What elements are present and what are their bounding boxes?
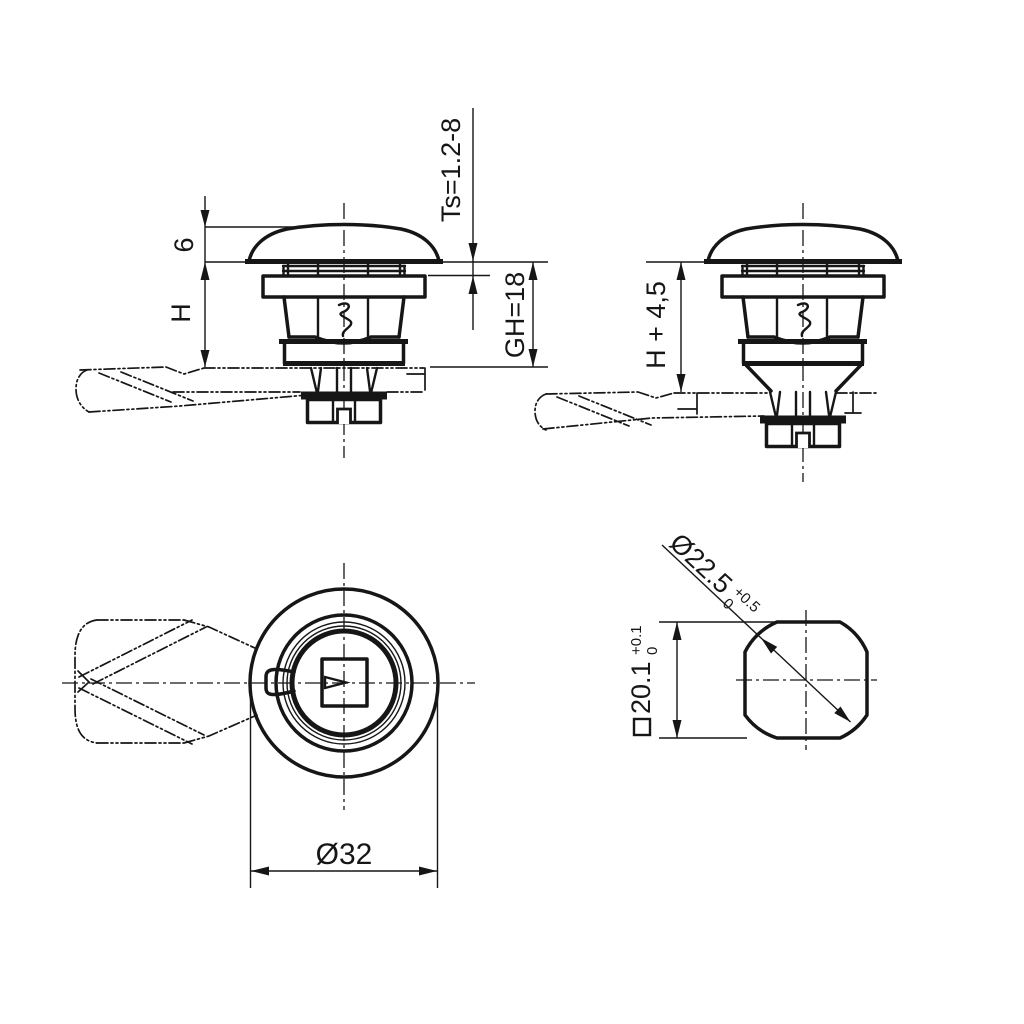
cam-lever-phantom — [75, 620, 257, 744]
dim-extended-height-label: H + 4,5 — [641, 281, 671, 369]
square-symbol — [634, 719, 650, 735]
drawing-canvas: 6 H Ts=1.2-8 GH=18 — [0, 0, 1024, 1024]
dim-cap-height-label: 6 — [169, 237, 199, 252]
dim-body-height-label: H — [166, 303, 196, 323]
dim-panel-range-label: Ts=1.2-8 — [436, 118, 466, 222]
dim-extended-height: H + 4,5 — [641, 262, 704, 392]
dim-diagonal-tol-lower: 0 — [719, 595, 737, 613]
dim-square-label: 20.1 — [626, 661, 656, 714]
dim-grip-height: GH=18 — [430, 262, 548, 367]
dim-outer-diameter-label: Ø32 — [316, 838, 373, 871]
view-top: Ø32 — [62, 563, 475, 888]
dim-square-tol-lower: 0 — [644, 647, 661, 655]
dim-panel-thickness: Ts=1.2-8 — [428, 108, 548, 330]
view-side-installed: 6 H Ts=1.2-8 GH=18 — [76, 108, 548, 458]
view-side-released: H + 4,5 — [535, 203, 902, 482]
view-cutout: Ø22.5 +0.5 0 20.1 +0.1 0 — [626, 527, 877, 750]
dim-grip-height-label: GH=18 — [500, 272, 530, 358]
dim-cap-height: 6 H — [166, 196, 294, 367]
dim-diagonal-label: Ø22.5 — [664, 527, 738, 599]
dim-square-tol-upper: +0.1 — [628, 625, 645, 655]
dim-cutout-diagonal: Ø22.5 +0.5 0 — [660, 527, 850, 722]
